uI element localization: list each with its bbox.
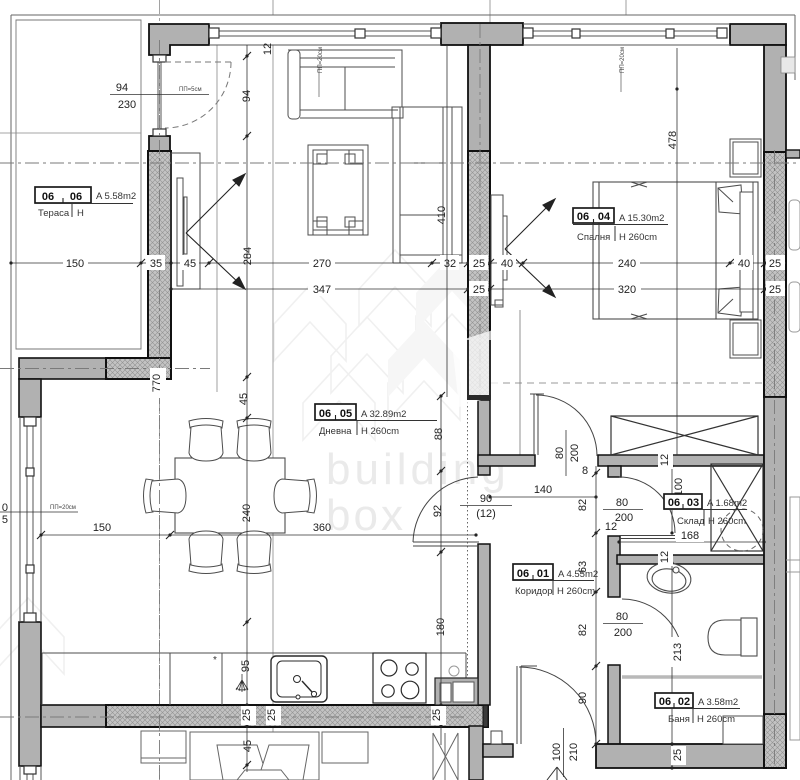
svg-text:06: 06 [517, 568, 529, 580]
svg-text:12: 12 [659, 454, 671, 466]
svg-text:H 260cm: H 260cm [557, 586, 595, 597]
svg-text:92: 92 [432, 505, 444, 517]
svg-text:Спалня: Спалня [577, 232, 610, 243]
svg-text:H 260cm: H 260cm [708, 516, 746, 527]
svg-text:140: 140 [534, 484, 552, 496]
svg-text:320: 320 [618, 284, 636, 296]
svg-text:ПП=5см: ПП=5см [179, 87, 202, 93]
svg-text:284: 284 [242, 247, 254, 265]
svg-text:45: 45 [242, 740, 254, 752]
svg-text:180: 180 [435, 618, 447, 636]
svg-text:25: 25 [266, 709, 278, 721]
svg-text:25: 25 [769, 258, 781, 270]
svg-text:04: 04 [598, 211, 611, 223]
svg-text:25: 25 [431, 709, 443, 721]
svg-text:06: 06 [668, 497, 680, 509]
svg-text:82: 82 [577, 624, 589, 636]
svg-text:95: 95 [240, 660, 252, 672]
svg-text:150: 150 [66, 258, 84, 270]
svg-text:40: 40 [738, 258, 750, 270]
svg-text:A 4.55m2: A 4.55m2 [558, 569, 598, 580]
svg-text:06: 06 [42, 191, 54, 203]
svg-text:90: 90 [577, 692, 589, 704]
svg-text:12: 12 [659, 551, 671, 563]
svg-text:A 32.89m2: A 32.89m2 [361, 409, 406, 420]
svg-text:(12): (12) [476, 508, 496, 520]
svg-text:12: 12 [605, 521, 617, 533]
svg-text:347: 347 [313, 284, 331, 296]
svg-text:H 260cm: H 260cm [619, 232, 657, 243]
svg-text:25: 25 [473, 258, 485, 270]
svg-text:200: 200 [569, 444, 581, 462]
svg-text:168: 168 [681, 530, 699, 542]
svg-text:25: 25 [672, 749, 684, 761]
svg-text:Тераса: Тераса [38, 208, 70, 219]
svg-text:06: 06 [577, 211, 589, 223]
svg-text:Склад: Склад [677, 516, 705, 527]
svg-text:H 260cm: H 260cm [697, 714, 735, 725]
svg-text:45: 45 [238, 393, 250, 405]
svg-text:478: 478 [667, 131, 679, 149]
svg-text:25: 25 [241, 709, 253, 721]
svg-text:94: 94 [116, 82, 128, 94]
svg-text:94: 94 [241, 90, 253, 102]
svg-text:A 3.58m2: A 3.58m2 [698, 697, 738, 708]
svg-text:01: 01 [537, 568, 549, 580]
svg-text:40: 40 [501, 258, 513, 270]
svg-text:410: 410 [436, 206, 448, 224]
svg-text:80: 80 [554, 447, 566, 459]
svg-text:150: 150 [93, 522, 111, 534]
svg-text:200: 200 [615, 512, 633, 524]
svg-text:270: 270 [313, 258, 331, 270]
svg-text:230: 230 [118, 99, 136, 111]
svg-text:80: 80 [616, 611, 628, 623]
svg-text:8: 8 [582, 465, 588, 477]
svg-text:06: 06 [70, 191, 82, 203]
svg-text:25: 25 [769, 284, 781, 296]
svg-text:A 1.68m2: A 1.68m2 [707, 498, 747, 509]
svg-text:240: 240 [618, 258, 636, 270]
svg-text:02: 02 [678, 696, 690, 708]
svg-text:360: 360 [313, 522, 331, 534]
svg-text:Баня: Баня [668, 714, 690, 725]
svg-text:45: 45 [184, 258, 196, 270]
svg-text:90: 90 [480, 493, 492, 505]
svg-text:770: 770 [151, 374, 163, 392]
svg-text:210: 210 [568, 743, 580, 761]
svg-text:06: 06 [319, 408, 331, 420]
svg-text:*: * [213, 655, 217, 666]
svg-text:5: 5 [2, 514, 8, 526]
svg-text:06: 06 [659, 696, 671, 708]
svg-text:240: 240 [241, 504, 253, 522]
svg-text:Дневна: Дневна [319, 426, 352, 437]
svg-text:A 15.30m2: A 15.30m2 [619, 213, 664, 224]
svg-text:A 5.58m2: A 5.58m2 [96, 191, 136, 202]
svg-text:82: 82 [577, 499, 589, 511]
svg-text:box: box [326, 491, 406, 540]
svg-text:12: 12 [262, 43, 274, 55]
svg-text:88: 88 [433, 428, 445, 440]
svg-text:ПП=20см: ПП=20см [50, 505, 76, 511]
svg-text:25: 25 [473, 284, 485, 296]
svg-text:05: 05 [340, 408, 352, 420]
svg-text:35: 35 [150, 258, 162, 270]
svg-text:100: 100 [551, 743, 563, 761]
svg-text:200: 200 [614, 627, 632, 639]
svg-text:Коридор: Коридор [515, 586, 553, 597]
svg-text:H: H [77, 208, 84, 219]
svg-text:0: 0 [2, 502, 8, 514]
svg-text:03: 03 [687, 497, 699, 509]
svg-text:80: 80 [616, 497, 628, 509]
svg-text:213: 213 [672, 643, 684, 661]
svg-text:H 260cm: H 260cm [361, 426, 399, 437]
svg-text:32: 32 [444, 258, 456, 270]
